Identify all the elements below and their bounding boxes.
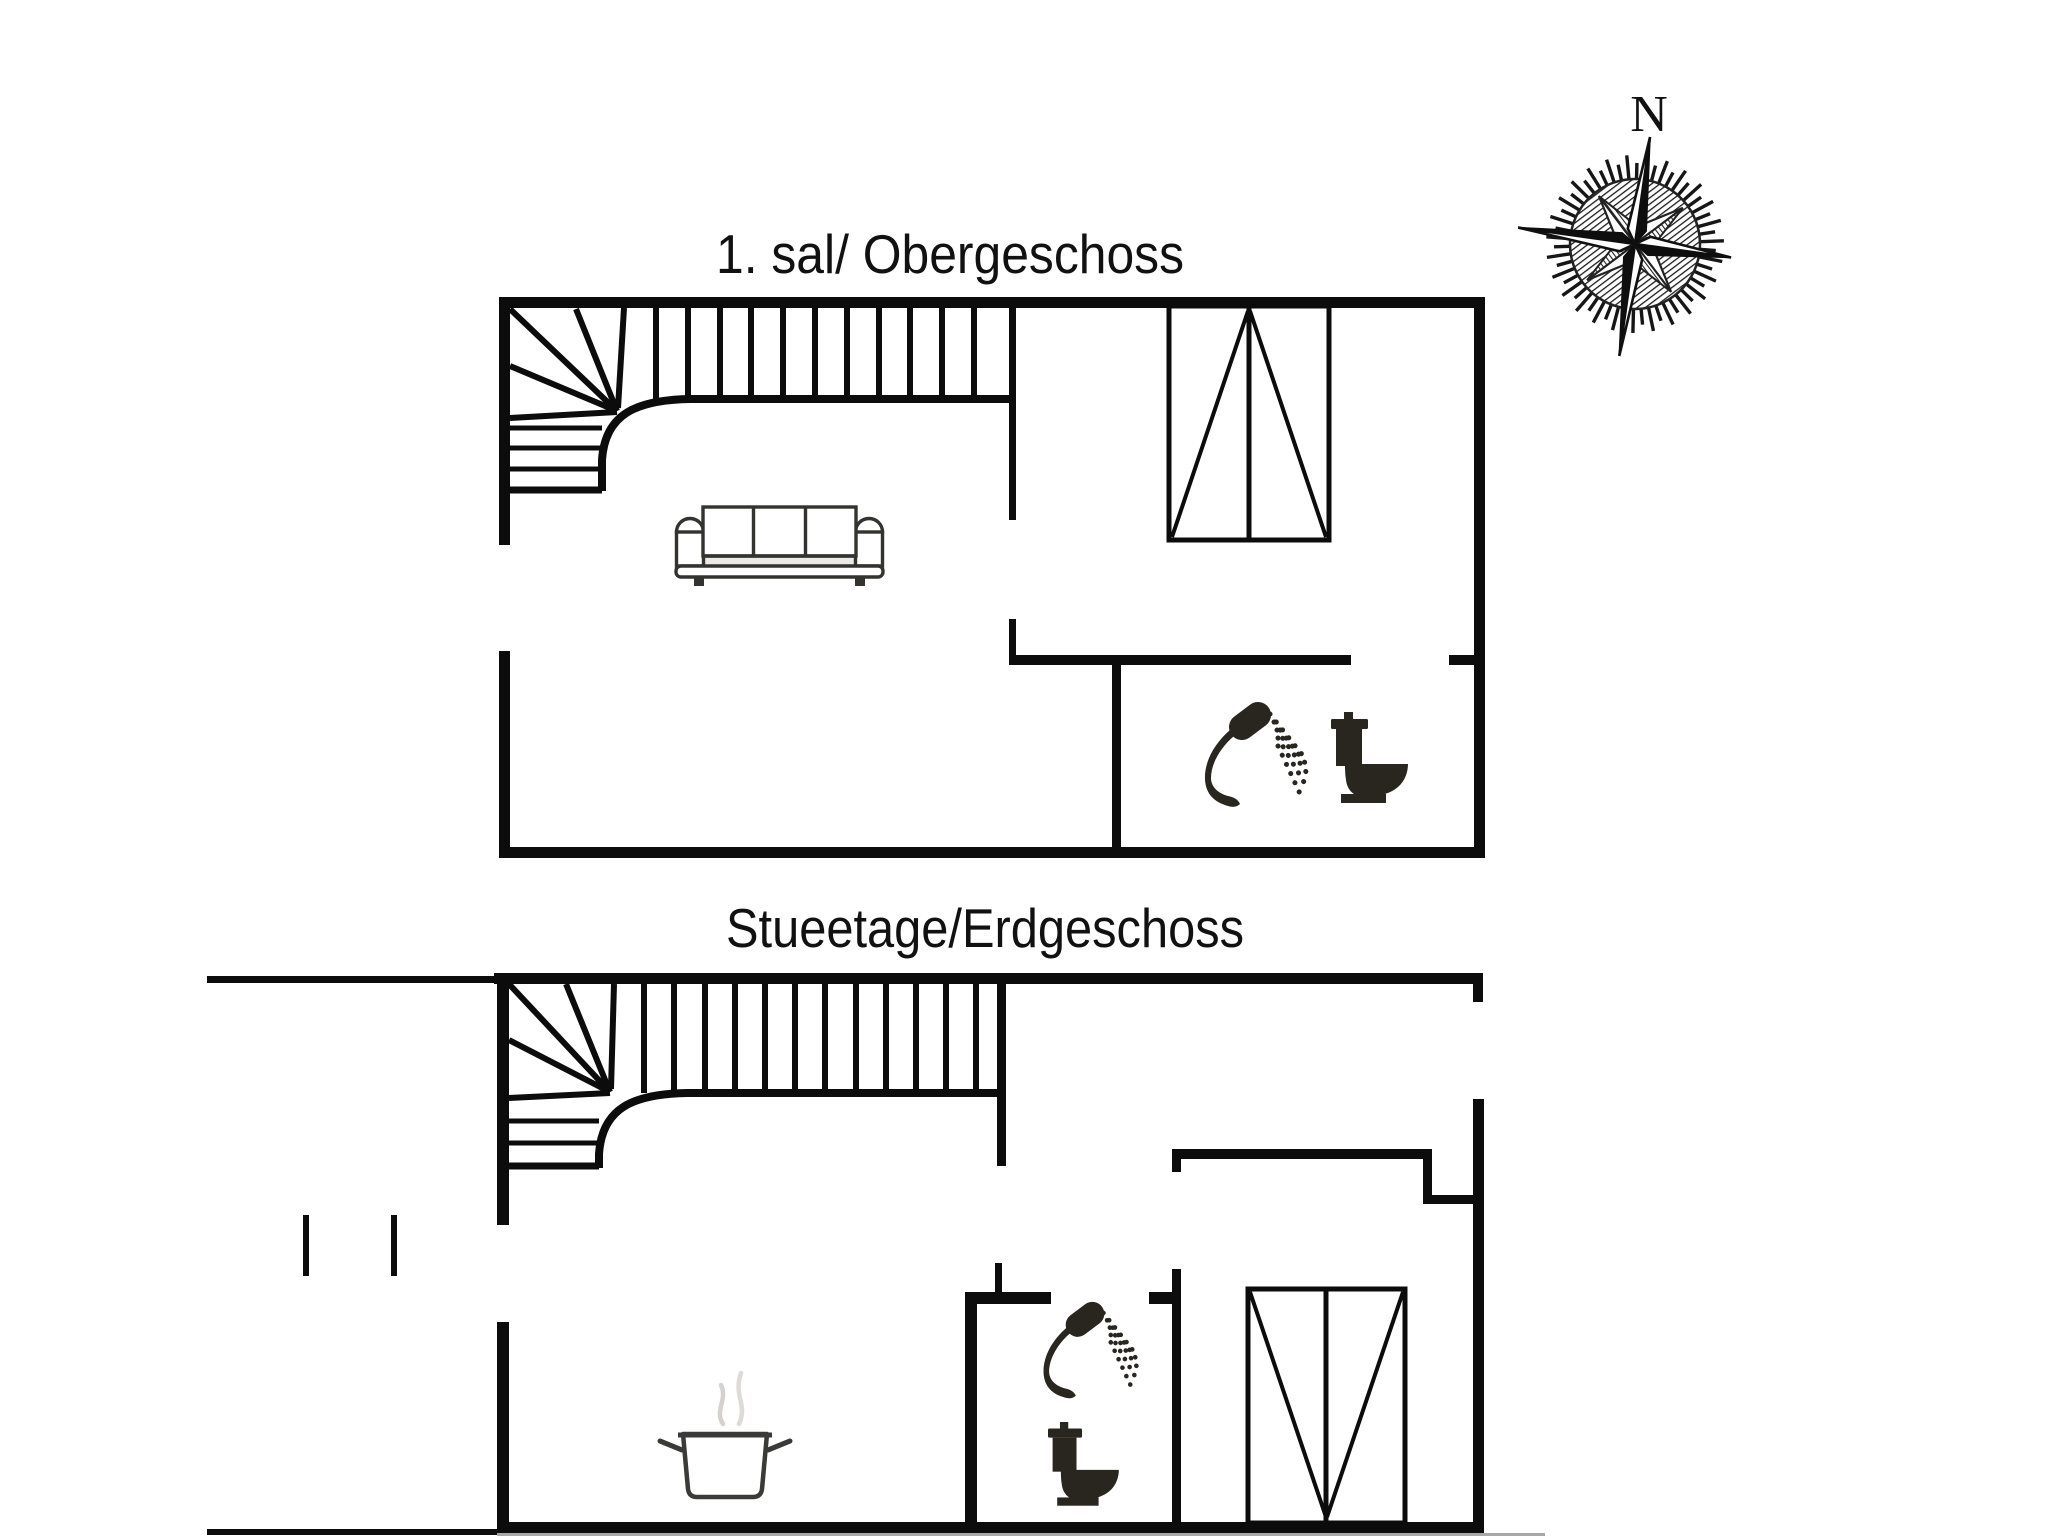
svg-text:N: N [1630,86,1668,143]
svg-text:1. sal/ Obergeschoss: 1. sal/ Obergeschoss [716,223,1184,285]
svg-text:Stueetage/Erdgeschoss: Stueetage/Erdgeschoss [726,897,1244,959]
